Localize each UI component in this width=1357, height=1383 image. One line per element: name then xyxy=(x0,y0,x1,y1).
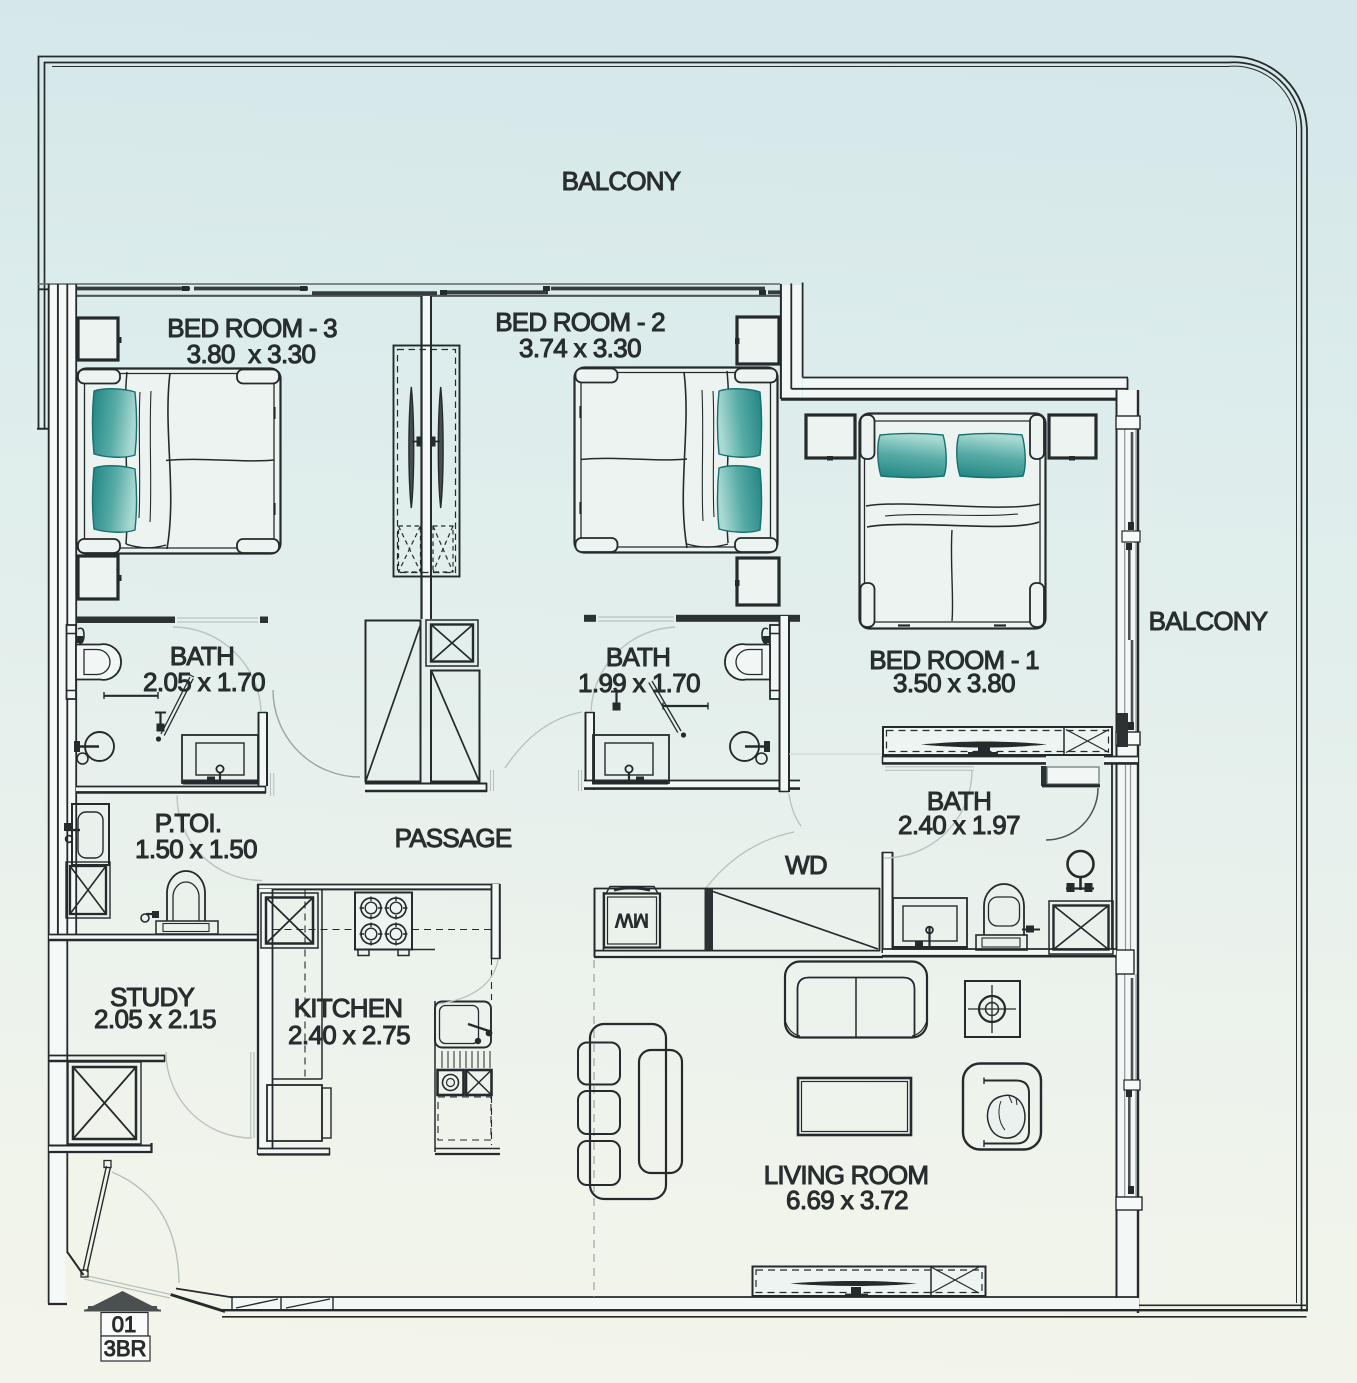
svg-text:01: 01 xyxy=(112,1312,136,1337)
svg-text:6.69 x 3.72: 6.69 x 3.72 xyxy=(786,1185,908,1215)
svg-text:PASSAGE: PASSAGE xyxy=(395,823,512,853)
svg-text:BALCONY: BALCONY xyxy=(1149,606,1268,636)
svg-text:2.40 x 1.97: 2.40 x 1.97 xyxy=(898,810,1020,840)
svg-text:3.50 x 3.80: 3.50 x 3.80 xyxy=(893,668,1015,698)
svg-text:3.80 x 3.30: 3.80 x 3.30 xyxy=(187,339,316,369)
svg-text:2.40 x 2.75: 2.40 x 2.75 xyxy=(288,1020,410,1050)
svg-text:3.74 x 3.30: 3.74 x 3.30 xyxy=(519,333,641,363)
svg-text:WD: WD xyxy=(785,850,827,880)
svg-text:2.05 x 1.70: 2.05 x 1.70 xyxy=(143,667,265,697)
svg-text:KITCHEN: KITCHEN xyxy=(294,993,403,1023)
svg-text:2.05 x 2.15: 2.05 x 2.15 xyxy=(94,1004,216,1034)
svg-text:1.99 x 1.70: 1.99 x 1.70 xyxy=(578,668,700,698)
svg-text:3BR: 3BR xyxy=(104,1336,147,1361)
svg-text:1.50 x 1.50: 1.50 x 1.50 xyxy=(135,834,257,864)
svg-text:MW: MW xyxy=(615,909,649,930)
svg-text:BALCONY: BALCONY xyxy=(562,166,681,196)
